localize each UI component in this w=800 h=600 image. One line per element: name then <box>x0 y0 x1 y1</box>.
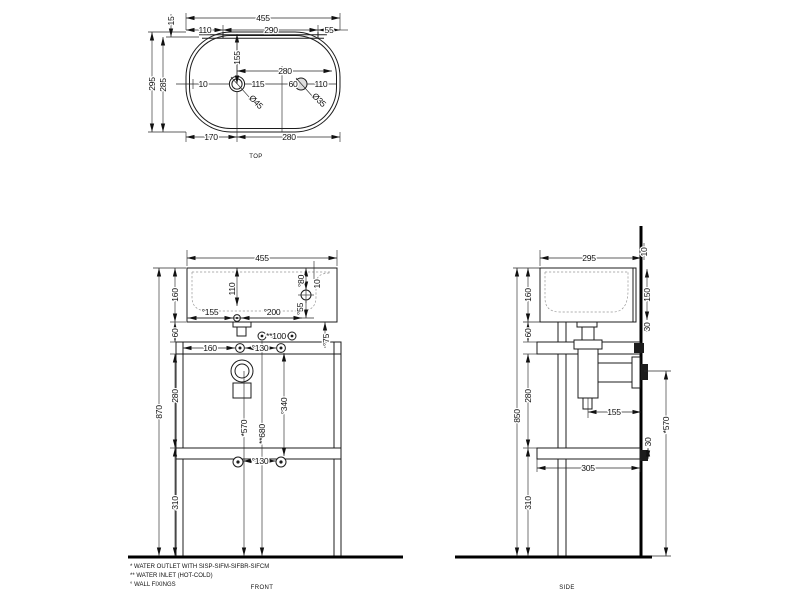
bowl-outline-dashed-side <box>545 272 628 312</box>
dimension-label: 160 <box>203 343 217 353</box>
dimension-label: 10 <box>198 79 208 89</box>
dimension-label: Ø45 <box>247 93 265 111</box>
dimension-label: 850 <box>512 409 522 423</box>
dimension-label: °340 <box>279 397 289 414</box>
front-view-label: FRONT <box>251 585 274 591</box>
technical-drawing-sheet: 45515110290552952851551011528060110Ø45Ø3… <box>0 0 800 600</box>
dimension-label: 110 <box>227 282 237 295</box>
dimension-label: *570 <box>661 416 671 433</box>
dimension-label: 155 <box>232 51 242 65</box>
dimension-label: 60 <box>288 79 298 89</box>
top-view: 45515110290552952851551011528060110Ø45Ø3… <box>147 13 348 160</box>
dimension-label: 305 <box>581 463 595 473</box>
dimension-label: °55 <box>295 302 305 315</box>
dimension-label: 115 <box>252 79 265 89</box>
drain-tailpiece-side <box>577 322 597 340</box>
front-view: 455160110°8010°155°200°5560**100°75160°1… <box>128 250 403 591</box>
footnotes: * WATER OUTLET WITH SISP-SIFM-SIFBR-SIFC… <box>130 564 269 588</box>
frame-leg-side <box>558 322 566 556</box>
side-view-label: SIDE <box>559 585 575 591</box>
dimension-label: 310 <box>170 496 180 510</box>
dimension-label: **680 <box>257 424 267 444</box>
siphon-front <box>231 360 253 398</box>
dimension-label: 60 <box>523 328 533 338</box>
basin-side <box>540 268 636 322</box>
footnote-water-inlet: ** WATER INLET (HOT-COLD) <box>130 573 213 579</box>
dimension-label: °155 <box>202 307 219 317</box>
dimension-label: 280 <box>278 66 292 76</box>
dimension-label: Ø35 <box>310 91 328 109</box>
dimension-label: 155 <box>607 407 621 417</box>
dimension-label: °75 <box>321 333 331 346</box>
dimension-label: 150 <box>642 288 652 302</box>
dimension-label: °130 <box>252 343 269 353</box>
footnote-water-outlet: * WATER OUTLET WITH SISP-SIFM-SIFBR-SIFC… <box>130 564 269 570</box>
dimension-label: 455 <box>256 13 270 23</box>
drain-tailpiece-front <box>233 322 251 336</box>
dimension-label: 295 <box>147 77 157 91</box>
side-view: 295101601506030280850155*57030305310 SID… <box>455 226 671 591</box>
dimension-label: 290 <box>264 25 278 35</box>
dimension-label: 280 <box>523 389 533 403</box>
dimension-label: °80 <box>296 274 306 287</box>
dimension-label: °130 <box>252 456 269 466</box>
dimension-label: 280 <box>282 132 296 142</box>
dimension-label: °200 <box>264 307 281 317</box>
dimension-label: 310 <box>523 496 533 510</box>
dimension-label: 455 <box>255 253 269 263</box>
dimension-label: 55 <box>324 25 334 35</box>
dimension-label: 15 <box>166 16 176 26</box>
dimension-label: 285 <box>158 78 168 92</box>
dimension-label: 160 <box>170 288 180 302</box>
dimension-label: 160 <box>523 288 533 302</box>
dimension-label: 110 <box>199 25 212 35</box>
dimension-label: *570 <box>239 419 249 436</box>
dimension-label: 30 <box>643 437 653 447</box>
dimension-label: 170 <box>204 132 218 142</box>
footnote-wall-fixings: ° WALL FIXINGS <box>130 582 176 588</box>
dimension-label: 10 <box>312 279 322 289</box>
dimension-label: **100 <box>266 331 286 341</box>
frame-legs-front <box>176 354 341 556</box>
dimension-label: 110 <box>315 79 328 89</box>
washbasin-dimension-drawing: 45515110290552952851551011528060110Ø45Ø3… <box>0 0 800 600</box>
dimension-label: 280 <box>170 389 180 403</box>
lower-rail-side <box>537 448 648 461</box>
top-view-label: TOP <box>249 154 262 160</box>
dimension-label: 870 <box>154 405 164 419</box>
dimension-label: 10 <box>639 247 649 257</box>
dimension-label: 295 <box>582 253 596 263</box>
dimension-label: 60 <box>170 328 180 338</box>
dimension-label: 30 <box>642 322 652 332</box>
centerlines-top <box>176 40 336 142</box>
